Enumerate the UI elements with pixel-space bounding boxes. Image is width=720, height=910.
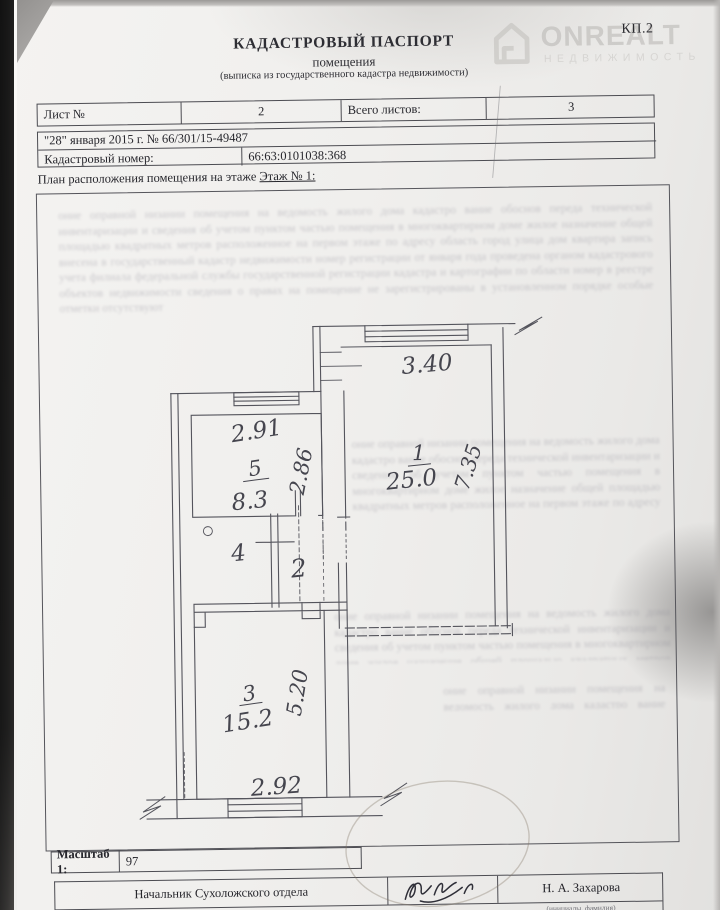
signature-hint: (инициалы, фамилия): [497, 902, 664, 910]
window: [234, 392, 299, 406]
dim-right-wall: 7.35: [450, 441, 487, 493]
window-hatch: [234, 396, 299, 401]
plan-floor-label: Этаж № 1:: [259, 168, 315, 183]
room3-number: 3: [241, 681, 258, 707]
door-jamb: [323, 522, 346, 530]
scanner-edge-strip: [0, 0, 14, 910]
wall: [338, 563, 349, 797]
room1-area: 25.0: [384, 465, 439, 496]
signature-cell: [387, 876, 497, 905]
wall: [345, 626, 512, 636]
document-sheet: ONREALT НЕДВИЖИМОСТЬ КП.2 КАДАСТРОВЫЙ ПА…: [0, 0, 720, 910]
wall: [321, 391, 350, 518]
sheet-value-cell: 2: [181, 100, 341, 123]
room2-number: 2: [288, 553, 308, 584]
room3-area: 15.2: [220, 705, 275, 739]
sheet-label-cell: Лист №: [38, 102, 181, 125]
dim-top-wall: 3.40: [400, 350, 453, 380]
boundary-dashed: [323, 520, 324, 600]
dim-kitchen-depth: 2.86: [285, 446, 318, 498]
room5-number: 5: [247, 456, 264, 482]
dim-room3-depth: 5.20: [282, 668, 313, 718]
room1-number: 1: [412, 441, 426, 465]
signatory-position: Начальник Сухоложского отдела: [55, 877, 387, 909]
wall: [171, 394, 184, 819]
plan-caption-text: План расположения помещения на этаже: [38, 169, 260, 186]
room4-number: 4: [229, 540, 247, 567]
signatory-name: Н. А. Захарова: [497, 873, 664, 902]
scale-value: 97: [119, 847, 362, 873]
sheet-number-table: Лист № 2 Всего листов: 3: [37, 94, 655, 126]
signature-scribble: [402, 877, 482, 904]
photo-right-edge: [713, 0, 720, 910]
window-hatch: [228, 804, 302, 812]
window-hatch: [365, 330, 468, 337]
room5-area: 8.3: [230, 487, 269, 517]
wall: [313, 326, 321, 391]
cadastral-label-cell: Кадастровый номер:: [38, 148, 241, 169]
plan-caption: План расположения помещения на этаже Эта…: [38, 168, 316, 187]
scale-label: Масштаб 1:: [51, 850, 120, 873]
scanned-document-photo: ONREALT НЕДВИЖИМОСТЬ КП.2 КАДАСТРОВЫЙ ПА…: [0, 0, 720, 910]
wall: [341, 345, 491, 347]
wall: [491, 328, 507, 628]
signature-table: Начальник Сухоложского отдела Н. А. Заха…: [54, 872, 664, 910]
window: [365, 324, 468, 342]
fixture-circle: [203, 527, 212, 536]
wall-ticks: [320, 352, 361, 381]
total-sheets-label-cell: Всего листов:: [341, 98, 486, 121]
wall-break-mark: [381, 783, 407, 805]
door-opening-dashes: [323, 534, 346, 560]
wall-break-mark: [515, 317, 542, 334]
dim-room3-width: 2.92: [249, 772, 303, 801]
dim-kitchen-width: 2.91: [228, 415, 284, 449]
cadastral-info-table: "28" января 2015 г. № 66/301/15-49487 Ка…: [37, 122, 655, 167]
total-sheets-value-cell: 3: [485, 95, 655, 119]
floor-plan-drawing: 3.40 2.91 5 8.3 2.86 1 25.0 7.35 4 2 3 1…: [36, 185, 680, 850]
photo-top-edge: [0, 0, 720, 7]
